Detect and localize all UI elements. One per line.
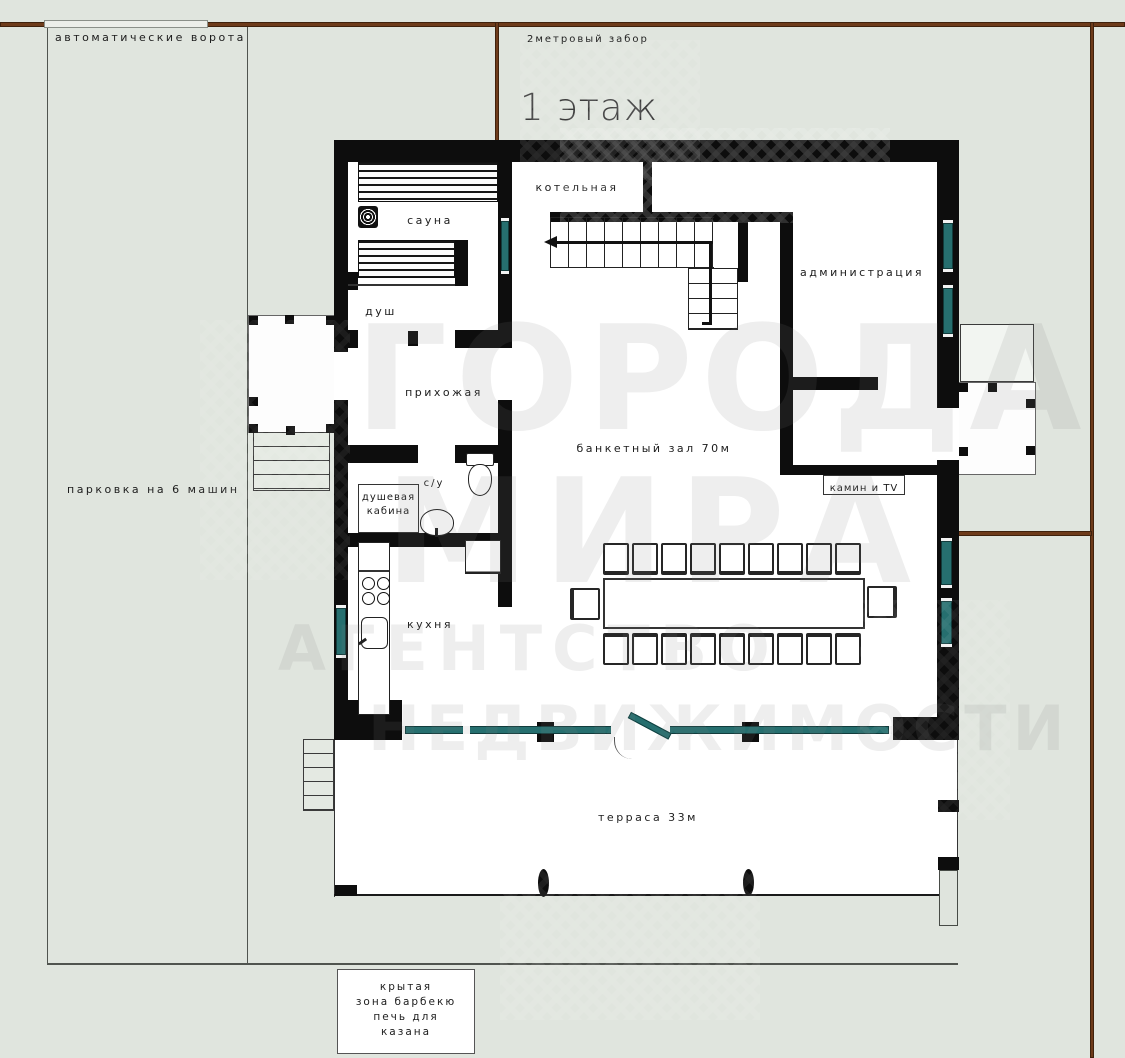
west-porch-deck — [248, 315, 335, 433]
chair — [867, 586, 897, 618]
wall-west-upper — [334, 140, 348, 352]
fireplace-tv-label-box: камин и TV — [823, 475, 905, 495]
room-label-shower: душ — [365, 305, 397, 318]
wall-stairs-right — [738, 212, 748, 282]
kitchen-appliance — [465, 540, 501, 574]
west-door-opening — [334, 352, 348, 400]
fence-mid-vertical — [495, 22, 499, 142]
gate-label: автоматические ворота — [55, 31, 246, 44]
wall-sauna-left-chunk — [348, 272, 358, 290]
banquet-table — [603, 578, 865, 629]
stove-burner-icon — [377, 577, 390, 590]
chair — [570, 588, 600, 620]
deck-post — [959, 447, 968, 456]
chair — [603, 633, 629, 665]
terrace-post-southwest — [335, 885, 357, 896]
porch-post — [286, 426, 295, 435]
sauna-bench-lower — [358, 240, 455, 278]
wall-hall-top-c — [455, 330, 512, 348]
window-admin-2 — [943, 285, 953, 337]
stove-burner-icon — [362, 592, 375, 605]
terrace-column-1 — [538, 869, 549, 897]
chair — [690, 543, 716, 575]
wall-east-upper — [937, 140, 959, 408]
parking-line-left — [47, 27, 48, 964]
bbq-line3: печь для — [338, 1010, 474, 1025]
bbq-line1: крытая — [338, 980, 474, 995]
wc-sink-tap-icon — [435, 528, 438, 537]
south-glazing-divider — [463, 726, 470, 734]
wall-corner-southeast — [893, 717, 959, 740]
wall-admin-left — [780, 212, 793, 475]
room-label-hallway: прихожая — [405, 386, 483, 399]
fence-right — [1090, 22, 1094, 1058]
chair — [777, 543, 803, 575]
porch-post — [249, 424, 258, 433]
wall-hall-bottom-a — [348, 445, 418, 463]
room-label-banquet: банкетный зал 70м — [577, 442, 732, 455]
deck-post — [959, 383, 968, 392]
chair — [777, 633, 803, 665]
stairs-direction-arrow — [556, 241, 713, 244]
terrace-bottom-edge — [334, 894, 958, 896]
room-label-admin: администрация — [800, 266, 924, 279]
window-east-2 — [941, 598, 952, 647]
wall-fireplace-bottom — [780, 465, 937, 475]
wall-hall-top-b — [408, 331, 418, 346]
terrace-west-steps — [303, 739, 334, 811]
porch-post — [249, 316, 258, 325]
terrace-east-step-box — [939, 870, 958, 926]
deck-post — [1026, 399, 1035, 408]
sauna-bench-upper — [358, 162, 498, 202]
chair — [632, 633, 658, 665]
bbq-line4: казана — [338, 1025, 474, 1040]
terrace-left-edge — [334, 740, 335, 897]
parking-label: парковка на 6 машин — [67, 483, 240, 496]
stove-burner-icon — [377, 592, 390, 605]
terrace-post-east-2 — [938, 857, 959, 870]
sauna-shower-line — [348, 284, 455, 286]
window-east-1 — [941, 538, 952, 588]
fireplace-tv-label: камин и TV — [830, 483, 899, 494]
site-bottom-line — [47, 963, 958, 965]
toilet-bowl-icon — [468, 464, 492, 496]
chair — [690, 633, 716, 665]
floor-plan-canvas: автоматические ворота 2метровый забор па… — [0, 0, 1125, 1058]
bbq-zone-box: крытая зона барбекю печь для казана — [337, 969, 475, 1054]
parking-line-right — [247, 27, 248, 964]
window-west — [336, 605, 346, 658]
east-deck — [958, 382, 1036, 475]
chair — [806, 543, 832, 575]
fence-label: 2метровый забор — [527, 34, 649, 46]
stairs-handrail-foot — [702, 322, 710, 325]
chair — [661, 543, 687, 575]
chair — [748, 633, 774, 665]
shower-cabin-label: душевая кабина — [358, 491, 419, 519]
wall-admin-inner — [793, 377, 878, 390]
fence-mid-horizontal — [958, 531, 1092, 536]
west-porch-steps — [253, 432, 330, 491]
chair — [835, 543, 861, 575]
chair — [806, 633, 832, 665]
shower-cabin-line2: кабина — [358, 505, 419, 519]
wall-boiler-right — [643, 162, 652, 212]
room-label-terrace: терраса 33м — [598, 811, 698, 824]
bbq-line2: зона барбекю — [338, 995, 474, 1010]
stove-burner-icon — [362, 577, 375, 590]
chair — [661, 633, 687, 665]
wall-divider-lower — [498, 400, 512, 607]
terrace-column-2 — [743, 869, 754, 896]
wall-east-lower — [937, 460, 959, 717]
shower-cabin-line1: душевая — [358, 491, 419, 505]
room-label-sauna: сауна — [407, 214, 453, 227]
glass-door-sauna-hall — [501, 218, 509, 274]
porch-post — [285, 315, 294, 324]
terrace-post-east-1 — [938, 800, 959, 812]
chair — [835, 633, 861, 665]
kitchen-counter-divider — [359, 570, 389, 572]
stairs-handrail — [709, 241, 712, 325]
porch-post — [249, 397, 258, 406]
chair — [632, 543, 658, 575]
room-label-kitchen: кухня — [407, 618, 453, 631]
porch-post — [326, 424, 335, 433]
room-label-wc: с/у — [424, 478, 445, 490]
deck-post — [1026, 446, 1035, 455]
deck-post — [988, 383, 997, 392]
wall-sauna-partition — [455, 240, 468, 286]
porch-post — [326, 316, 335, 325]
chair — [719, 633, 745, 665]
automatic-gate — [44, 20, 208, 28]
sauna-stove-icon — [358, 206, 378, 228]
chair — [603, 543, 629, 575]
kitchen-sink-icon — [361, 617, 388, 649]
room-label-boiler: котельная — [535, 181, 618, 194]
window-admin-1 — [943, 220, 953, 272]
chair — [719, 543, 745, 575]
chair — [748, 543, 774, 575]
wall-north — [334, 140, 959, 162]
deck-door-opening — [937, 408, 959, 460]
east-exterior-stairs — [960, 324, 1034, 382]
page-title: 1 этаж — [520, 86, 658, 129]
wall-hall-top-a — [348, 330, 358, 348]
stairs-lower-flight — [688, 268, 738, 330]
